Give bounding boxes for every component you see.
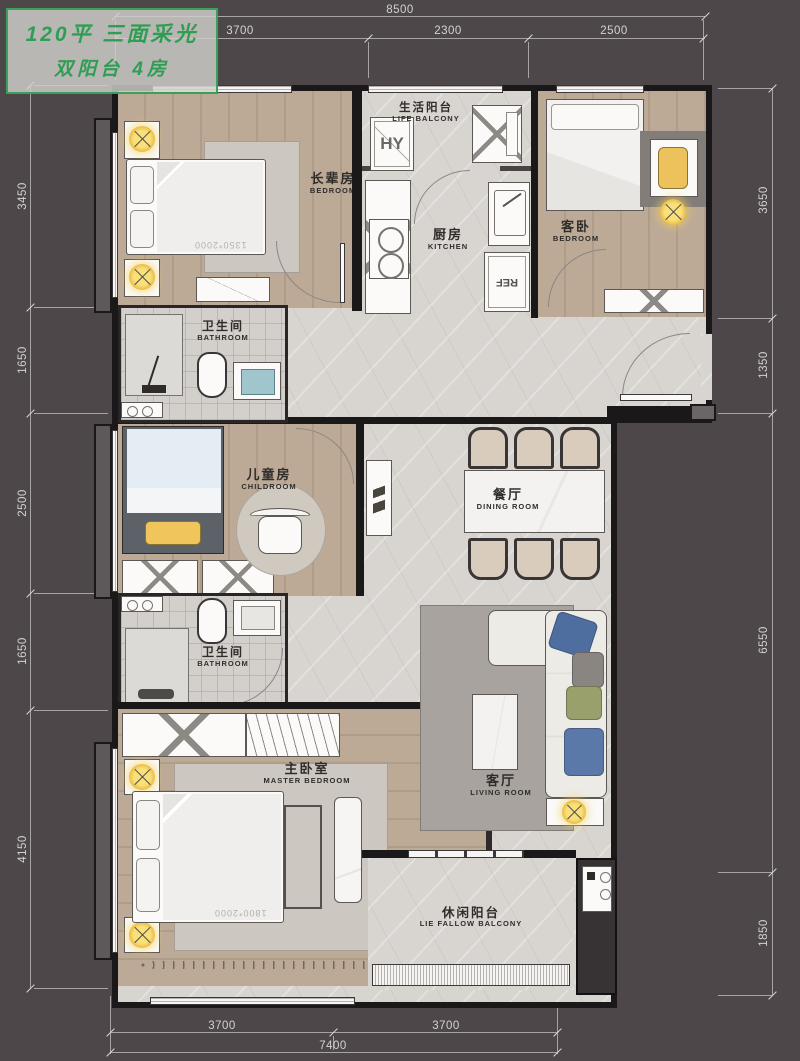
dining-chair-6 [560, 538, 600, 580]
dimension-value: 1850 [758, 919, 770, 947]
elder-pillow-1 [130, 166, 154, 204]
dining-chair-3 [560, 427, 600, 469]
utility-knob-icon [587, 872, 595, 880]
elder-bed: 1350*2000 [126, 159, 266, 255]
stove [369, 219, 409, 279]
dimension-line [718, 872, 772, 873]
dimension-line [34, 988, 108, 989]
dimension-line [703, 20, 704, 80]
child-bed-frame [122, 426, 224, 554]
guest-door-arc [548, 249, 606, 307]
child-desk-chair [258, 516, 302, 554]
kitchen-sink-cabinet [488, 182, 530, 246]
floorplan-canvas: 8500370023002500345016502500165041503650… [0, 0, 800, 1061]
child-pillow-yellow [145, 521, 201, 545]
room-dining [440, 425, 610, 581]
elder-blanket [157, 162, 263, 252]
master-bench [334, 797, 362, 903]
basin-1-icon [241, 369, 275, 395]
entry-opening [701, 334, 712, 400]
dimension-line [110, 1052, 557, 1053]
bath1-counter [121, 402, 163, 418]
guest-pillow [551, 104, 639, 130]
master-blanket [163, 794, 281, 920]
basin-circle-2-icon [142, 406, 153, 417]
dimension-line [368, 42, 369, 78]
master-pillow-2 [136, 858, 160, 912]
dining-chair-2 [514, 427, 554, 469]
dimension-value: 3700 [208, 1020, 236, 1032]
wall-child-right [356, 424, 364, 596]
dimension-value: 4150 [17, 835, 29, 863]
dimension-value: 2500 [17, 489, 29, 517]
refrigerator: REF [484, 252, 530, 312]
guest-wardrobe [604, 289, 704, 313]
burner-1-icon [378, 227, 404, 253]
dining-chair-5 [514, 538, 554, 580]
wall-elder-kitchen [352, 91, 362, 311]
master-lamp-top-icon [129, 764, 155, 790]
utility-circle-2-icon [600, 889, 611, 900]
child-closet-left [122, 560, 198, 594]
master-wardrobe-right [246, 713, 340, 757]
window-guest-top [556, 85, 644, 93]
master-bed: 1800*2000 [132, 791, 284, 923]
balcony-sliding-door [408, 850, 524, 858]
dimension-value: 3450 [17, 182, 29, 210]
room-guest-bedroom [538, 91, 706, 317]
room-bathroom-1 [118, 305, 288, 423]
dining-chair-1 [468, 427, 508, 469]
bath2-door-arc [225, 648, 283, 706]
balcony-utility-closet [576, 858, 617, 995]
shower-base-icon [142, 385, 166, 393]
elder-lamp-bottom-icon [129, 264, 155, 290]
window-life-balcony-top [368, 85, 503, 93]
room-child [118, 424, 362, 596]
elder-bed-size-label: 1350*2000 [194, 240, 247, 250]
child-bed-mattress [127, 429, 221, 513]
sink-basin-icon [494, 190, 526, 236]
washing-machine: HY [370, 117, 414, 171]
basin-circle-3-icon [127, 600, 138, 611]
title-line-1: 120平 三面采光 [8, 18, 216, 48]
dining-table [464, 470, 605, 533]
dimension-value: 1650 [17, 346, 29, 374]
guest-lamp-icon [660, 199, 686, 225]
hall-console-table [366, 460, 392, 536]
child-door-arc [296, 428, 354, 484]
dimension-value: 1350 [758, 351, 770, 379]
washer-hy-label: HY [374, 121, 410, 167]
dimension-value: 2300 [434, 25, 462, 37]
bath2-counter [121, 596, 163, 612]
dimension-line [718, 413, 772, 414]
dimension-value: 1650 [17, 637, 29, 665]
dimension-value: 3700 [226, 25, 254, 37]
basin-circle-1-icon [127, 406, 138, 417]
fridge-label: REF [488, 256, 526, 308]
window-elder-left [112, 132, 118, 298]
room-leisure-balcony [368, 858, 574, 990]
dimension-line [772, 88, 773, 995]
master-wardrobe-left [122, 713, 246, 757]
room-bathroom-2 [118, 593, 288, 711]
dimension-value: 3700 [432, 1020, 460, 1032]
child-chair-back [250, 508, 310, 516]
bay-window-left-1 [94, 118, 112, 313]
elder-door-leaf [340, 243, 345, 303]
appliance-panel [506, 112, 518, 156]
shower-head-icon [147, 356, 159, 389]
dimension-line [34, 710, 108, 711]
dimension-line [528, 42, 529, 78]
sofa-pillow-blue-2 [564, 728, 604, 776]
dimension-line [718, 88, 772, 89]
kitchen-counter [365, 180, 411, 314]
window-master-bottom [150, 997, 355, 1005]
dimension-line [718, 995, 772, 996]
elder-lamp-top-icon [129, 126, 155, 152]
dimension-line [30, 85, 31, 988]
vanity-1 [233, 362, 281, 400]
toilet-1 [197, 352, 227, 398]
shower-tray-icon [138, 689, 174, 699]
room-elder-bedroom: 1350*2000 [118, 91, 354, 308]
master-lamp-bottom-icon [129, 922, 155, 948]
dimension-value: 3650 [758, 186, 770, 214]
dimension-line [718, 318, 772, 319]
dimension-line [110, 996, 111, 1054]
sofa-pillow-gray [572, 652, 604, 688]
shower-1 [125, 314, 183, 396]
shower-2 [125, 628, 189, 706]
balcony-appliance [472, 105, 522, 163]
elder-door-arc [276, 241, 340, 303]
entry-door-leaf [620, 394, 692, 401]
window-master-left [112, 748, 118, 953]
console-art-icon [373, 473, 385, 525]
window-child-left [112, 430, 118, 592]
dimension-value: 7400 [319, 1040, 347, 1052]
living-lamp-icon [562, 800, 586, 824]
bay-window-left-2 [94, 424, 112, 599]
utility-circle-1-icon [600, 872, 611, 883]
utility-fixture [582, 866, 612, 912]
master-bed-platform [284, 805, 322, 909]
bay-window-left-3 [94, 742, 112, 960]
basin-circle-4-icon [142, 600, 153, 611]
entry-pier [690, 404, 716, 421]
dimension-value: 2500 [600, 25, 628, 37]
dimension-value: 6550 [758, 626, 770, 654]
toilet-2 [197, 598, 227, 644]
wall-balcony-kitchen-right [500, 166, 531, 171]
master-pillow-1 [136, 800, 160, 850]
basin-2-icon [241, 606, 275, 630]
guest-bed [546, 99, 644, 211]
vanity-2 [233, 600, 281, 636]
dimension-line [34, 413, 108, 414]
coffee-table [472, 694, 518, 770]
master-bed-size-label: 1800*2000 [214, 908, 267, 918]
balcony-railing [372, 964, 570, 986]
elder-bench [196, 277, 270, 302]
title-panel: 120平 三面采光 双阳台 4房 [6, 8, 218, 94]
elder-pillow-2 [130, 210, 154, 248]
guest-chair [658, 147, 688, 189]
dimension-value: 8500 [386, 4, 414, 16]
dining-chair-4 [468, 538, 508, 580]
title-line-2: 双阳台 4房 [8, 54, 216, 81]
burner-2-icon [378, 253, 404, 279]
wall-kitchen-guest [531, 91, 538, 318]
sofa-pillow-green [566, 686, 602, 720]
